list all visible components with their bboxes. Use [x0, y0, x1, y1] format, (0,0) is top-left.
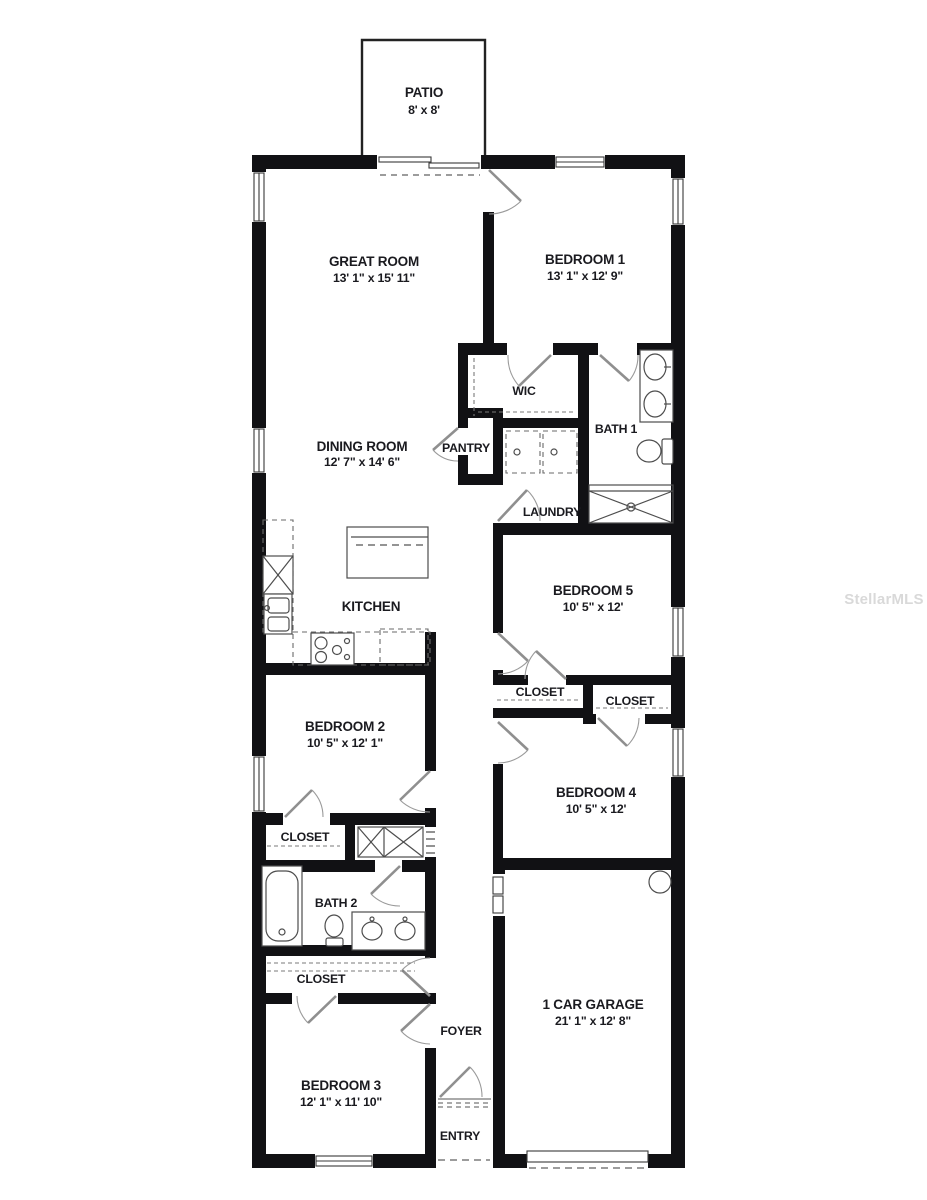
label-patio: PATIO	[405, 85, 443, 100]
dishwasher-icon	[263, 556, 293, 594]
label-bedroom-1: BEDROOM 1	[545, 252, 626, 267]
label-pantry: PANTRY	[442, 441, 490, 455]
garage-house-door	[491, 874, 507, 916]
window-bedroom-5	[669, 607, 687, 657]
label-dining-room: DINING ROOM	[317, 439, 408, 454]
dims-bedroom-5: 10' 5" x 12'	[563, 600, 624, 614]
label-bedroom-5: BEDROOM 5	[553, 583, 634, 598]
label-bedroom-3: BEDROOM 3	[301, 1078, 382, 1093]
window-great-room	[250, 172, 268, 222]
bath2-tub-icon	[262, 866, 302, 946]
window-dining-room	[250, 428, 268, 473]
dims-dining-room: 12' 7" x 14' 6"	[324, 455, 400, 469]
stove-icon	[311, 633, 354, 665]
bath2-toilet-icon	[325, 915, 343, 946]
dims-bedroom-1: 13' 1" x 12' 9"	[547, 269, 623, 283]
label-garage: 1 CAR GARAGE	[542, 997, 643, 1012]
label-bedroom-2: BEDROOM 2	[305, 719, 385, 734]
window-bedroom-3	[315, 1152, 373, 1170]
label-laundry: LAUNDRY	[523, 505, 581, 519]
label-wic: WIC	[512, 384, 536, 398]
label-bedroom-4: BEDROOM 4	[556, 785, 637, 800]
garage-door	[527, 1150, 648, 1172]
floor-plan-canvas: PATIO 8' x 8' GREAT ROOM 13' 1" x 15' 11…	[0, 0, 927, 1200]
dims-patio: 8' x 8'	[408, 103, 440, 117]
dims-garage: 21' 1" x 12' 8"	[555, 1014, 631, 1028]
dims-great-room: 13' 1" x 15' 11"	[333, 271, 415, 285]
page-background	[0, 0, 927, 1200]
label-bath-2: BATH 2	[315, 896, 358, 910]
label-bath-1: BATH 1	[595, 422, 638, 436]
bath1-vanity	[640, 350, 673, 422]
label-closet-bedroom-5: CLOSET	[516, 685, 565, 699]
dims-bedroom-3: 12' 1" x 11' 10"	[300, 1095, 382, 1109]
front-door-threshold	[436, 1097, 493, 1110]
label-kitchen: KITCHEN	[342, 599, 401, 614]
label-entry: ENTRY	[440, 1129, 480, 1143]
label-closet-bedroom-2: CLOSET	[281, 830, 330, 844]
bath1-toilet-icon	[637, 439, 673, 464]
kitchen-island	[347, 527, 428, 578]
kitchen-sink-icon	[264, 594, 292, 634]
label-great-room: GREAT ROOM	[329, 254, 419, 269]
window-bedroom-1	[669, 178, 687, 225]
dims-bedroom-4: 10' 5" x 12'	[566, 802, 627, 816]
mechanical-closet-icon	[358, 827, 423, 857]
dims-bedroom-2: 10' 5" x 12' 1"	[307, 736, 383, 750]
bath2-vanity	[352, 912, 425, 950]
window-bedroom-2	[250, 756, 268, 812]
watermark-text: StellarMLS	[844, 591, 924, 608]
label-closet-bedroom-3: CLOSET	[297, 972, 346, 986]
window-bedroom-4	[669, 728, 687, 777]
label-closet-bedroom-4: CLOSET	[606, 694, 655, 708]
label-foyer: FOYER	[440, 1024, 482, 1038]
window-bedroom-1-top	[555, 153, 605, 171]
entry-opening	[436, 1152, 493, 1172]
